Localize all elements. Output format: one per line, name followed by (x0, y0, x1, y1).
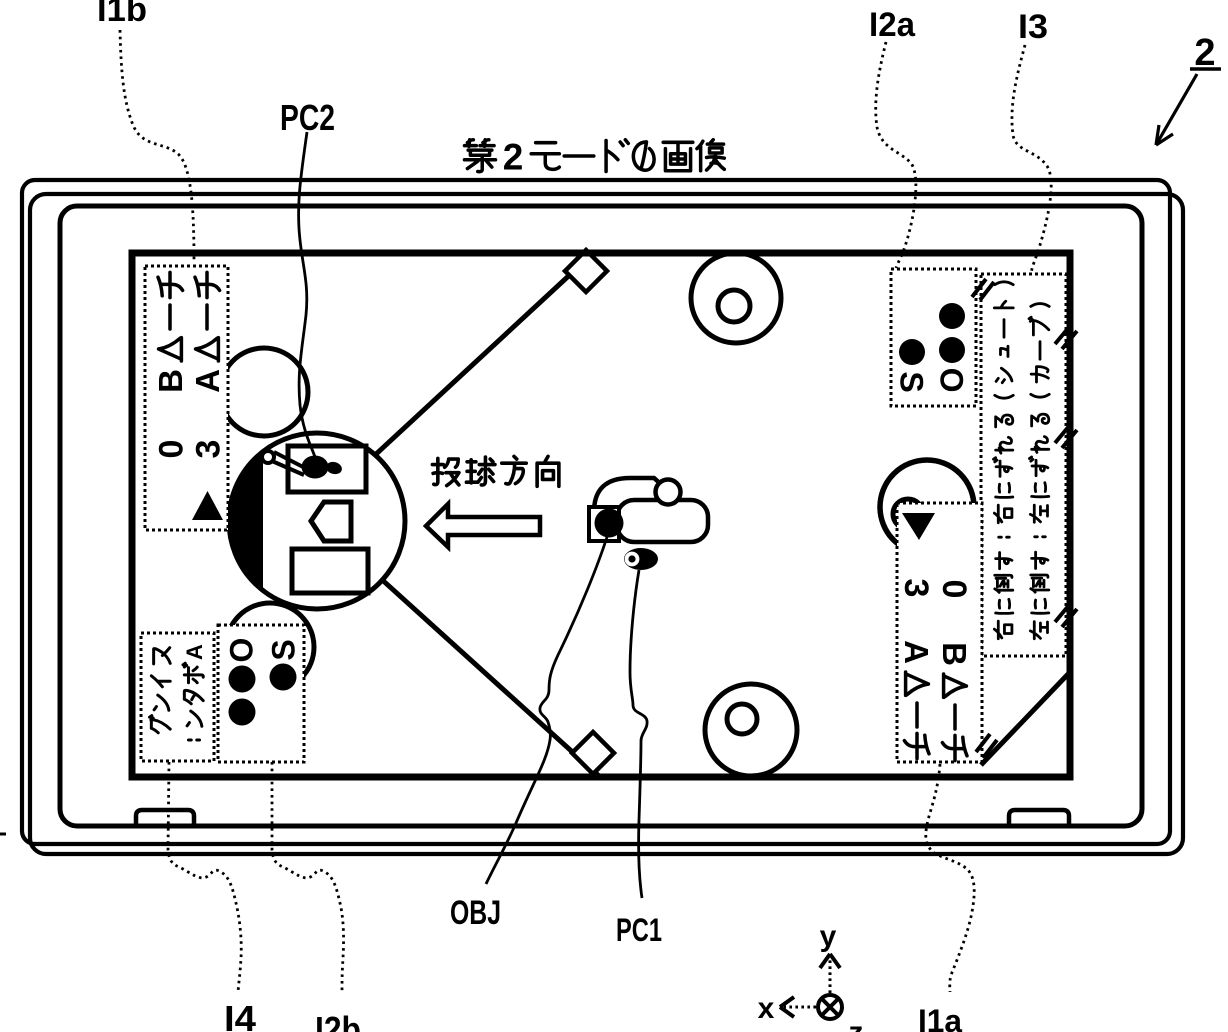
svg-text:x: x (758, 992, 775, 1025)
svg-text:O: O (933, 368, 969, 393)
svg-text:0: 0 (935, 580, 973, 599)
svg-text:PC1: PC1 (616, 912, 662, 948)
svg-text:3: 3 (189, 440, 227, 459)
svg-text:O: O (224, 638, 260, 663)
svg-text:y: y (820, 920, 837, 953)
svg-text:S: S (266, 639, 302, 660)
svg-text:A: A (182, 644, 207, 660)
svg-text:I3: I3 (1018, 8, 1048, 46)
svg-text:I2b: I2b (315, 1009, 361, 1032)
svg-text:I1b: I1b (97, 0, 147, 29)
svg-text:A: A (189, 369, 226, 393)
svg-text:2: 2 (503, 136, 524, 177)
svg-text:OBJ: OBJ (450, 894, 501, 932)
svg-text:I2a: I2a (869, 6, 916, 44)
svg-text:z: z (849, 1016, 864, 1032)
svg-text:B: B (152, 369, 189, 393)
svg-text:0: 0 (152, 440, 190, 459)
svg-text:3: 3 (897, 579, 935, 598)
svg-text:I1a: I1a (918, 1003, 962, 1032)
svg-text:S: S (893, 371, 929, 392)
svg-text:B: B (936, 642, 973, 666)
svg-text:A: A (898, 640, 935, 664)
svg-text:I4: I4 (224, 998, 256, 1032)
svg-text:PC2: PC2 (280, 97, 335, 138)
